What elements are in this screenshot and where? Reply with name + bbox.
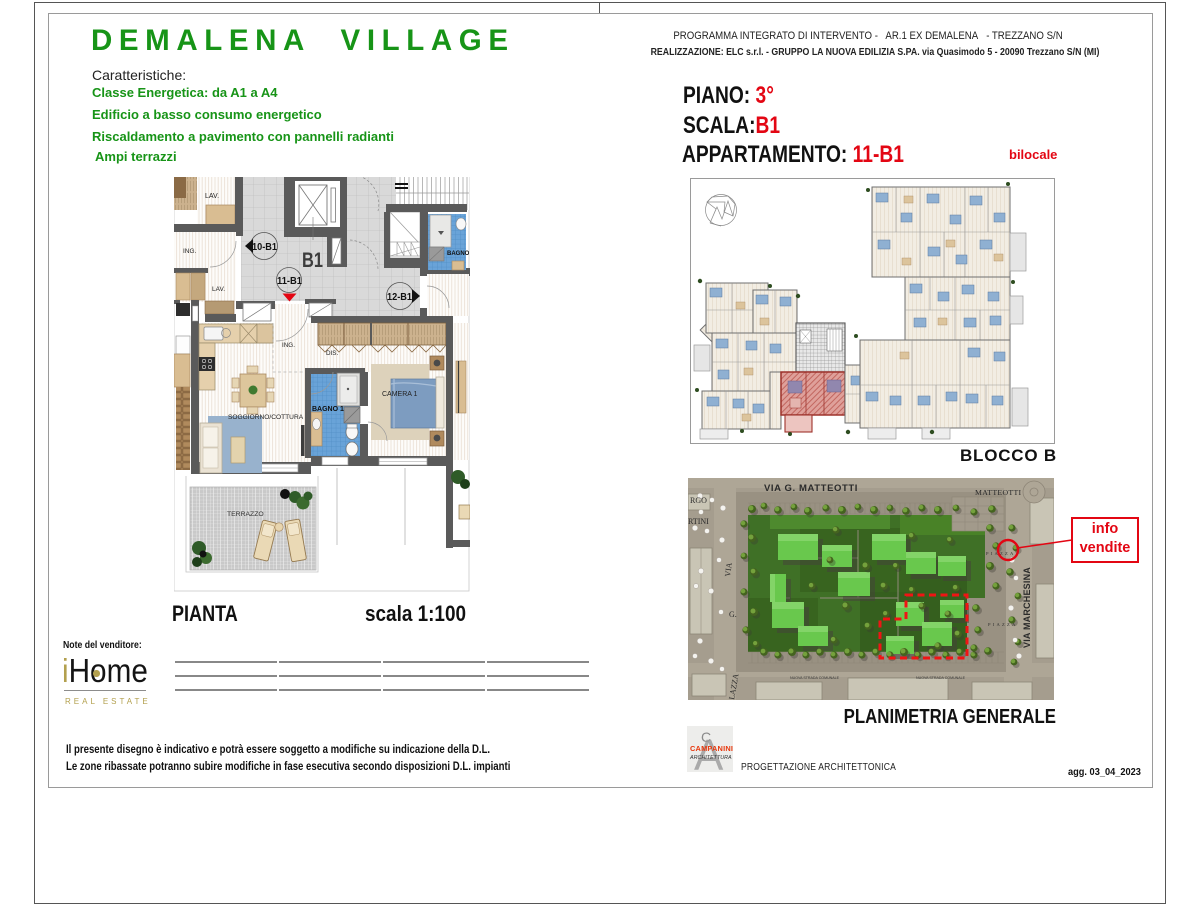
svg-text:VIA G. MATTEOTTI: VIA G. MATTEOTTI <box>764 483 858 494</box>
svg-text:CAMERA 1: CAMERA 1 <box>382 391 418 398</box>
svg-text:MATTEOTTI: MATTEOTTI <box>975 488 1022 497</box>
svg-text:BAGNO 1: BAGNO 1 <box>312 406 344 413</box>
svg-text:CAMPANINI: CAMPANINI <box>690 744 733 753</box>
svg-text:G.: G. <box>729 610 737 619</box>
svg-text:BAGNO: BAGNO <box>447 251 470 257</box>
svg-text:RGO: RGO <box>690 496 707 505</box>
svg-text:NUOVA STRADA COMUNALE: NUOVA STRADA COMUNALE <box>916 676 966 680</box>
svg-text:LAV.: LAV. <box>212 286 225 293</box>
svg-text:B1: B1 <box>302 249 323 272</box>
svg-text:SOGGIORNO/COTTURA: SOGGIORNO/COTTURA <box>228 414 304 421</box>
svg-text:DIS.: DIS. <box>326 350 338 357</box>
svg-text:11-B1: 11-B1 <box>277 275 302 287</box>
svg-text:VIA MARCHESINA: VIA MARCHESINA <box>1022 567 1032 648</box>
svg-text:10-B1: 10-B1 <box>252 241 277 253</box>
svg-text:LAV.: LAV. <box>205 193 219 200</box>
svg-text:PIAZZA: PIAZZA <box>988 622 1018 627</box>
svg-text:NUOVA STRADA COMUNALE: NUOVA STRADA COMUNALE <box>790 676 840 680</box>
svg-text:12-B1: 12-B1 <box>387 291 412 303</box>
svg-text:TERRAZZO: TERRAZZO <box>227 511 264 518</box>
svg-text:RTINI: RTINI <box>688 517 709 526</box>
svg-text:ARCHITETTURA: ARCHITETTURA <box>689 755 732 761</box>
svg-text:ING.: ING. <box>183 248 197 255</box>
svg-text:ING.: ING. <box>282 342 295 349</box>
